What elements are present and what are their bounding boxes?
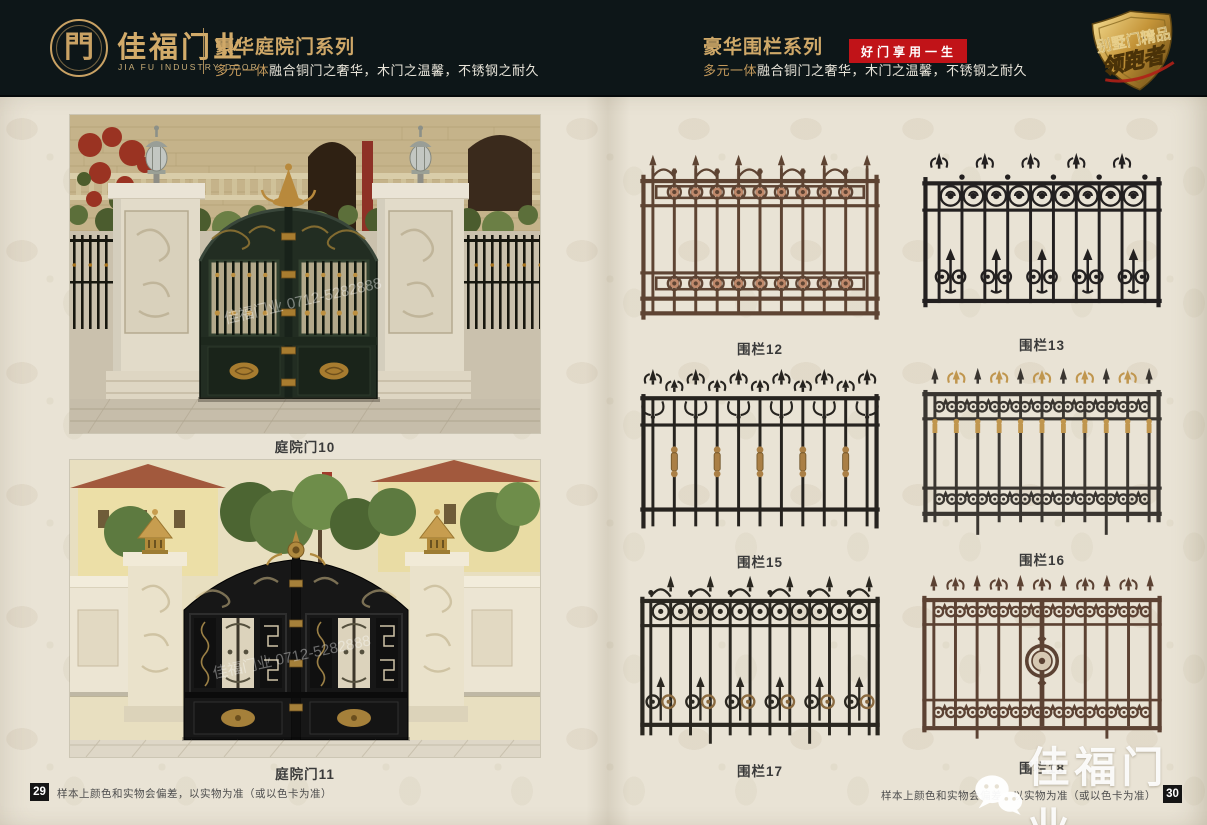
- disclaimer-left: 样本上颜色和实物会偏差，以实物为准（或以色卡为准）: [57, 786, 332, 801]
- fence-illustration: [916, 571, 1168, 753]
- product-label: 庭院门10: [70, 436, 540, 456]
- watermark-brand-text: 佳福门业: [1027, 734, 1207, 825]
- product-label: 围栏13: [916, 334, 1168, 354]
- product-label: 围栏17: [634, 760, 886, 780]
- subtitle-rest-part: 融合铜门之奢华，木门之温馨，不锈钢之耐久: [757, 63, 1027, 78]
- fence-illustration: [634, 152, 886, 334]
- product-label: 庭院门11: [70, 763, 540, 783]
- brand-logo-icon: 門: [50, 19, 108, 77]
- series-right-title: 豪华围栏系列: [703, 32, 823, 59]
- product-label: 围栏12: [634, 338, 886, 358]
- shield-emblem-icon: 别墅门精品 领跑者: [1072, 6, 1198, 96]
- product-photo-courtyard-gate-10: 佳福门业 0712-5282888: [70, 115, 540, 433]
- catalog-spread: 門 佳福门业 JIA FU INDUSTRY DOOR 豪华庭院门系列 多元一体…: [0, 0, 1207, 825]
- fence-product-cell: 围栏12: [634, 152, 886, 358]
- subtitle-rest-part: 融合铜门之奢华，木门之温馨，不锈钢之耐久: [269, 63, 539, 78]
- page-spine-shadow: [586, 97, 630, 825]
- fence-product-cell: 围栏13: [916, 148, 1168, 354]
- fence-product-cell: 围栏17: [634, 574, 886, 780]
- series-left-title: 豪华庭院门系列: [215, 32, 355, 59]
- product-photo-courtyard-gate-11: 佳福门业 0712-5282888: [70, 460, 540, 757]
- subtitle-gold-part: 多元一体: [703, 63, 757, 78]
- fence-product-cell: 围栏16: [916, 363, 1168, 569]
- fence-illustration: [916, 148, 1168, 330]
- page-number-left: 29: [30, 783, 49, 801]
- fence-illustration: [634, 574, 886, 756]
- header-divider: [203, 28, 204, 74]
- fence-illustration: [634, 365, 886, 547]
- fence-product-cell: 围栏15: [634, 365, 886, 571]
- wechat-icon: [972, 772, 1025, 818]
- series-right-subtitle: 多元一体融合铜门之奢华，木门之温馨，不锈钢之耐久: [703, 60, 1027, 79]
- brand-watermark: 佳福门业: [972, 734, 1207, 825]
- header-band: 門 佳福门业 JIA FU INDUSTRY DOOR 豪华庭院门系列 多元一体…: [0, 0, 1207, 97]
- catalog-pages: 佳福门业 0712-5282888 庭院门10 佳福门业 0712-528288…: [0, 97, 1207, 825]
- subtitle-gold-part: 多元一体: [215, 63, 269, 78]
- product-label: 围栏16: [916, 549, 1168, 569]
- logo-inner-ring: [56, 25, 102, 71]
- fence-illustration: [916, 363, 1168, 545]
- product-label: 围栏15: [634, 551, 886, 571]
- series-left-subtitle: 多元一体融合铜门之奢华，木门之温馨，不锈钢之耐久: [215, 60, 539, 79]
